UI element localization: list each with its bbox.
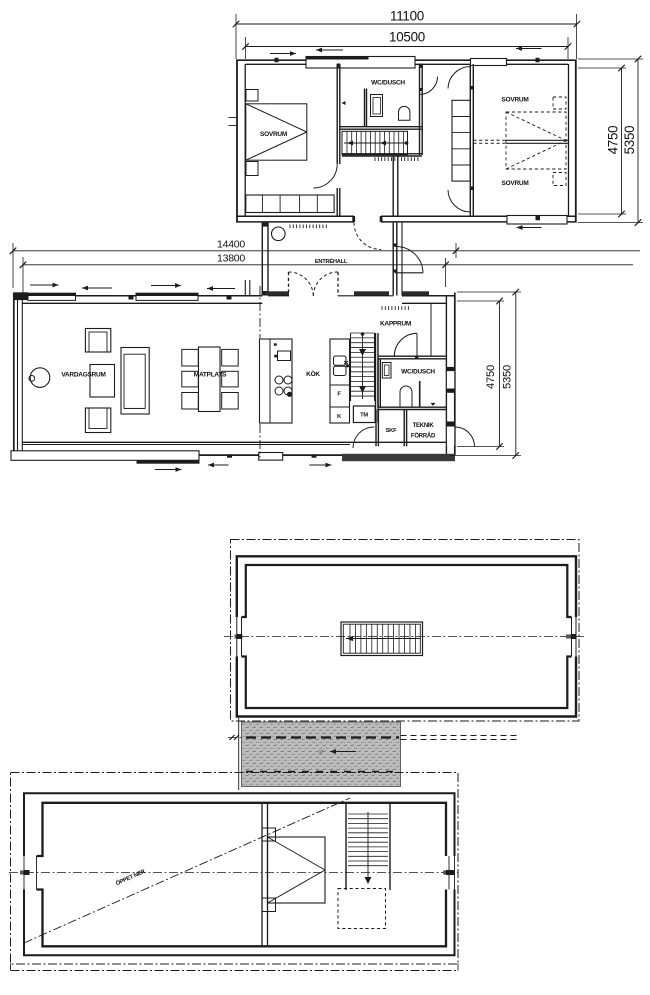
- svg-text:SOVRUM: SOVRUM: [501, 180, 528, 187]
- svg-text:TEKNIK: TEKNIK: [413, 423, 435, 429]
- svg-text:SOVRUM: SOVRUM: [260, 131, 287, 138]
- svg-text:SOVRUM: SOVRUM: [501, 97, 528, 104]
- svg-text:FÖRRÅD: FÖRRÅD: [411, 432, 436, 439]
- svg-text:MATPLATS: MATPLATS: [194, 372, 227, 379]
- svg-text:KAPPRUM: KAPPRUM: [380, 321, 411, 328]
- svg-text:14400: 14400: [217, 239, 245, 251]
- svg-text:VARDAGSRUM: VARDAGSRUM: [61, 372, 105, 379]
- svg-text:13800: 13800: [217, 253, 245, 265]
- svg-text:TM: TM: [360, 413, 368, 419]
- svg-text:4750: 4750: [606, 126, 621, 155]
- svg-text:WC/DUSCH: WC/DUSCH: [401, 369, 435, 376]
- svg-text:5350: 5350: [622, 126, 637, 155]
- svg-text:ENTRÉHALL: ENTRÉHALL: [315, 257, 348, 265]
- svg-text:11100: 11100: [390, 9, 424, 24]
- svg-text:SKF: SKF: [386, 428, 398, 434]
- svg-text:WC/DUSCH: WC/DUSCH: [371, 80, 405, 87]
- svg-text:KÖK: KÖK: [306, 369, 320, 378]
- svg-text:4750: 4750: [485, 365, 497, 389]
- svg-text:5350: 5350: [502, 365, 514, 389]
- svg-text:10500: 10500: [389, 30, 425, 45]
